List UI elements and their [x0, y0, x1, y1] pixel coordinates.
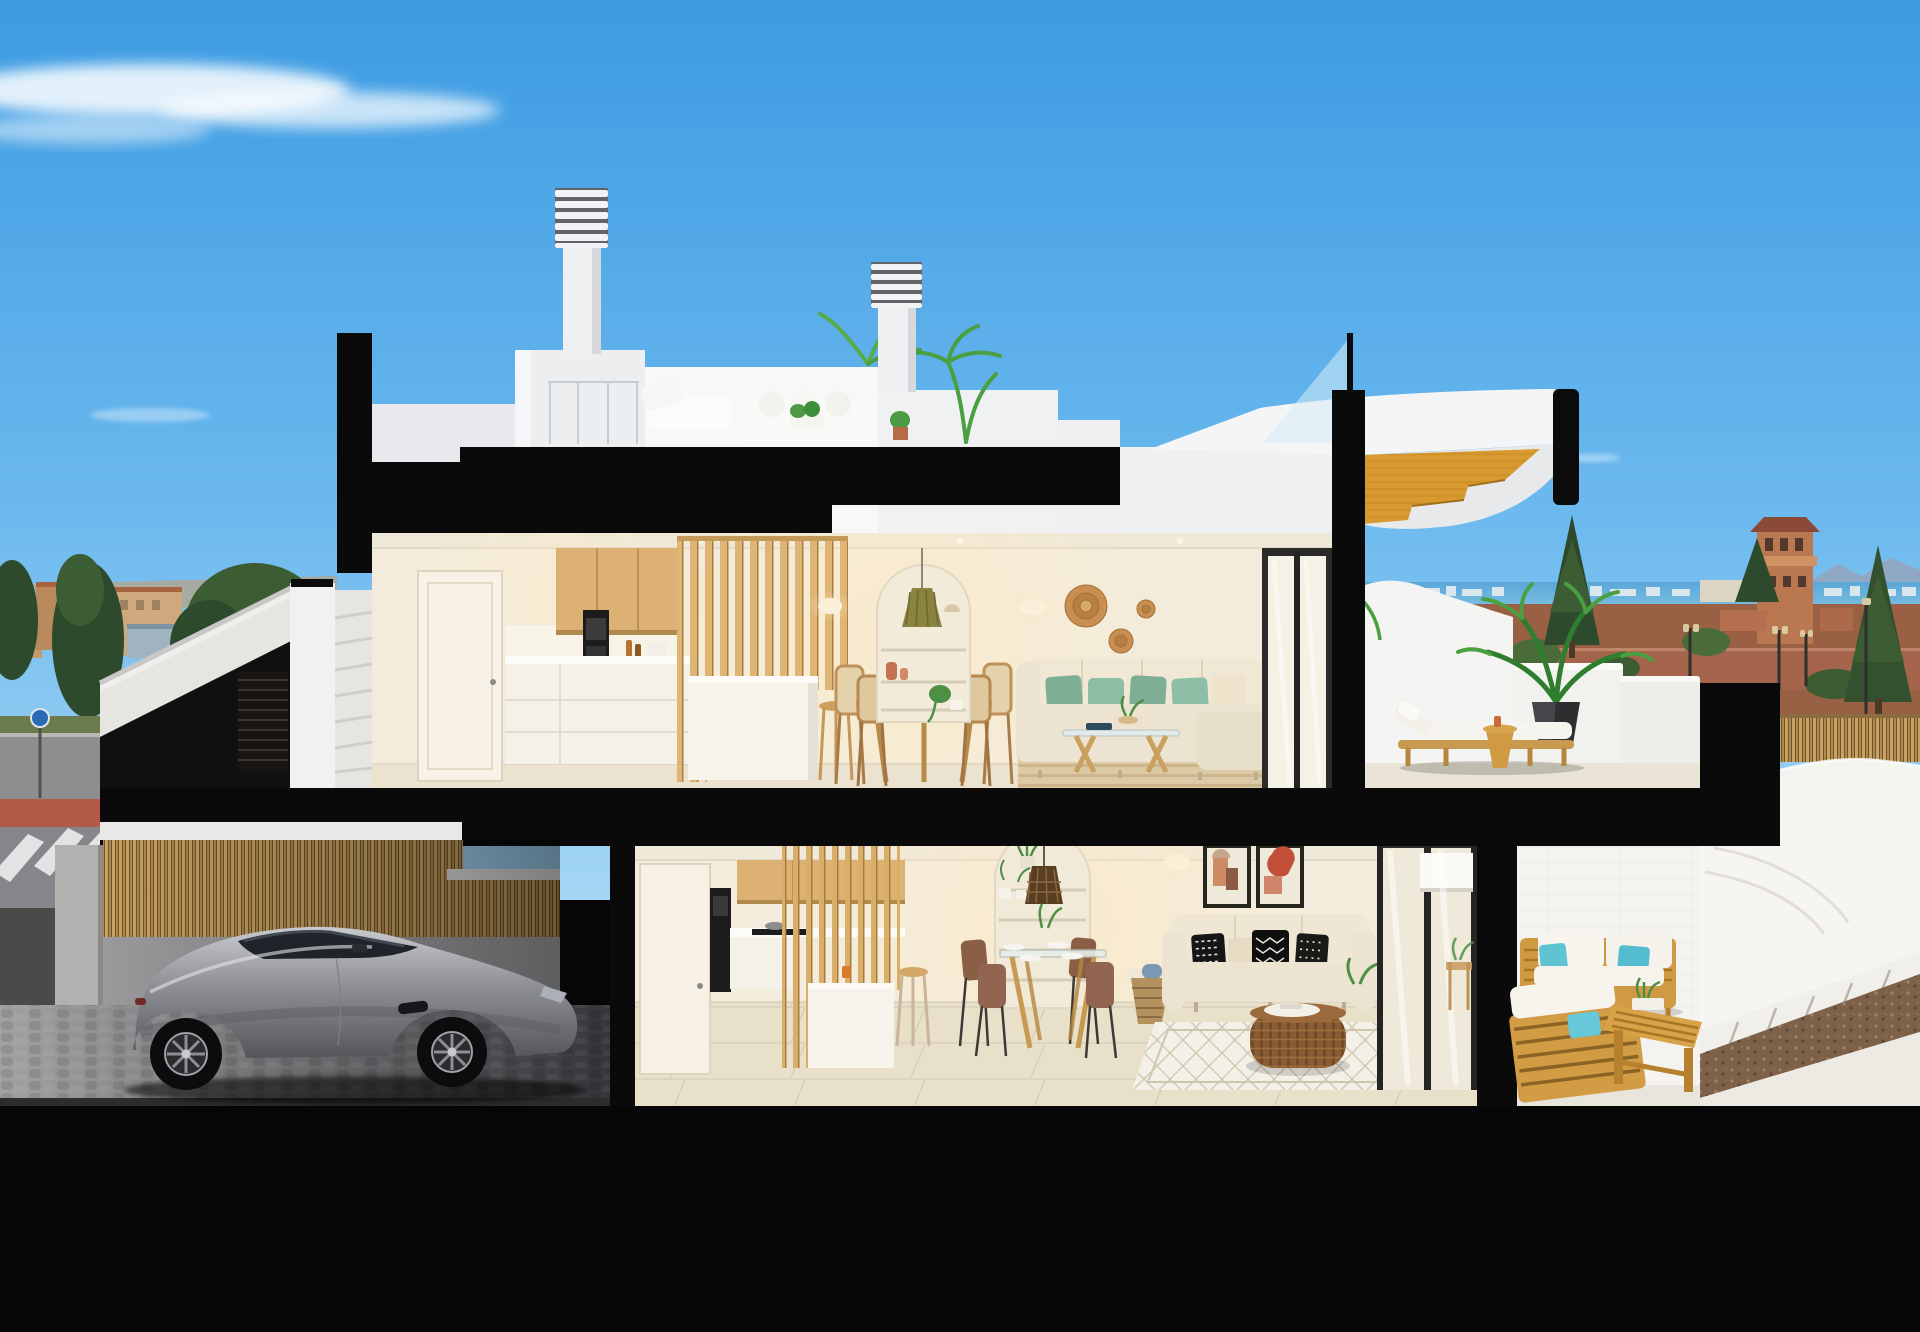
door-handle [490, 679, 496, 685]
upper-cabinets [556, 548, 678, 634]
blue-towel [1142, 964, 1162, 979]
garage [0, 822, 635, 1108]
mirror [352, 944, 367, 952]
upper-sofa [1016, 658, 1272, 780]
curved-garden-wall [1780, 759, 1920, 846]
rear-wheel [150, 1018, 222, 1090]
render-canvas [0, 0, 1920, 1332]
entrance-steps [335, 590, 372, 790]
cut-block-right [1700, 683, 1780, 846]
books [1086, 723, 1112, 730]
red-paved-lane [0, 799, 103, 827]
cross-section-render [0, 0, 1920, 1332]
planter-box [1632, 998, 1664, 1010]
bottle [842, 966, 851, 978]
fence-top-beam [100, 822, 462, 840]
cut-wall-garage [610, 846, 635, 1108]
lower-sofa [1162, 914, 1378, 1012]
cut-wall-patio [1477, 846, 1517, 1108]
lower-sliding-door [1377, 838, 1477, 1090]
cut-base-slab [0, 1106, 1920, 1332]
front-wheel [417, 1017, 487, 1087]
upper-sliding-door [1262, 548, 1332, 790]
cut-block-stair-end [1553, 389, 1579, 505]
terracotta-building [1720, 610, 1767, 631]
wall-cap [291, 579, 333, 587]
garage-side-wall [55, 845, 103, 1005]
base-cabinets [505, 664, 690, 764]
countertop [505, 656, 690, 664]
cut-wall-terrace [1332, 390, 1365, 790]
patio [1505, 846, 1920, 1108]
asphalt [0, 737, 103, 799]
cut-column-left [337, 333, 372, 573]
rattan-coffee-table [1246, 1003, 1350, 1076]
chimney-2 [871, 262, 922, 392]
upper-interior-door [418, 571, 502, 781]
entrance-gate [238, 672, 288, 772]
terrace-back-wall-curved [1365, 581, 1513, 790]
teal-pillow [1567, 1011, 1602, 1039]
lower-interior-door [640, 864, 710, 1074]
niche-plant [929, 685, 951, 703]
terracotta-building-2 [1820, 608, 1853, 631]
lower-arch-niche [995, 832, 1090, 1008]
roller-blind [1420, 853, 1473, 890]
taillight [135, 998, 146, 1005]
street-retaining-wall [0, 908, 55, 1008]
roof-fascia-right [1115, 447, 1332, 533]
sofa-chaise [1196, 712, 1272, 770]
terracotta-pot [893, 427, 908, 440]
entrance-wall [290, 583, 335, 790]
bamboo-fence-right [1768, 716, 1920, 762]
cup [1494, 716, 1501, 727]
